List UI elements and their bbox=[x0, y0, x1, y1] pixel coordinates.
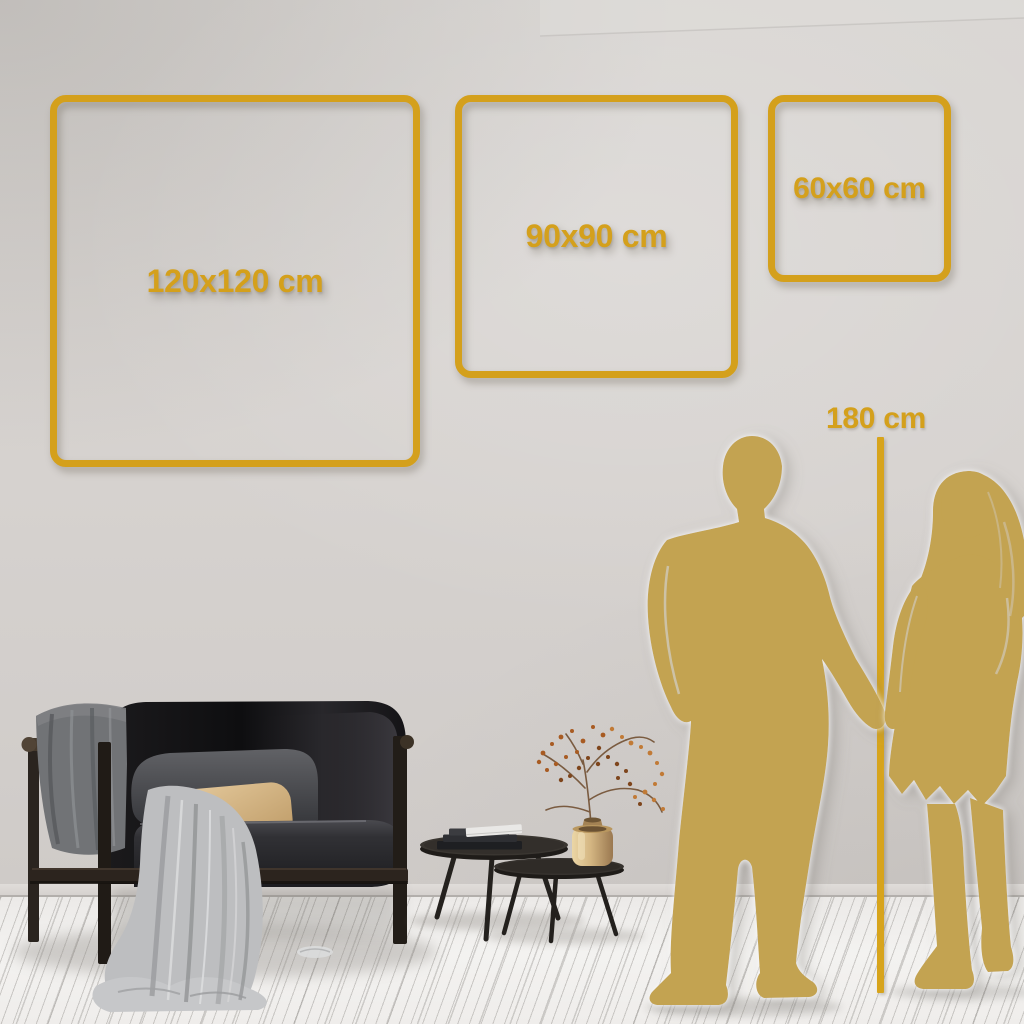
size-frame-90: 90x90 cm bbox=[455, 95, 738, 378]
size-label-90: 90x90 cm bbox=[526, 218, 668, 255]
coffee-tables bbox=[409, 725, 665, 944]
ceiling-line bbox=[540, 0, 1024, 36]
sofa bbox=[13, 701, 437, 1012]
wall-art-size-guide: 120x120 cm 90x90 cm 60x60 cm 180 cm bbox=[0, 0, 1024, 1024]
size-label-60: 60x60 cm bbox=[793, 172, 926, 206]
height-reference-label: 180 cm bbox=[796, 402, 956, 436]
size-frame-120: 120x120 cm bbox=[50, 95, 420, 467]
books bbox=[437, 824, 522, 849]
woman-silhouette bbox=[885, 471, 1024, 989]
man-silhouette bbox=[648, 436, 886, 1005]
size-label-120: 120x120 cm bbox=[147, 263, 324, 300]
blanket-dark bbox=[36, 703, 127, 854]
size-frame-60: 60x60 cm bbox=[768, 95, 951, 282]
